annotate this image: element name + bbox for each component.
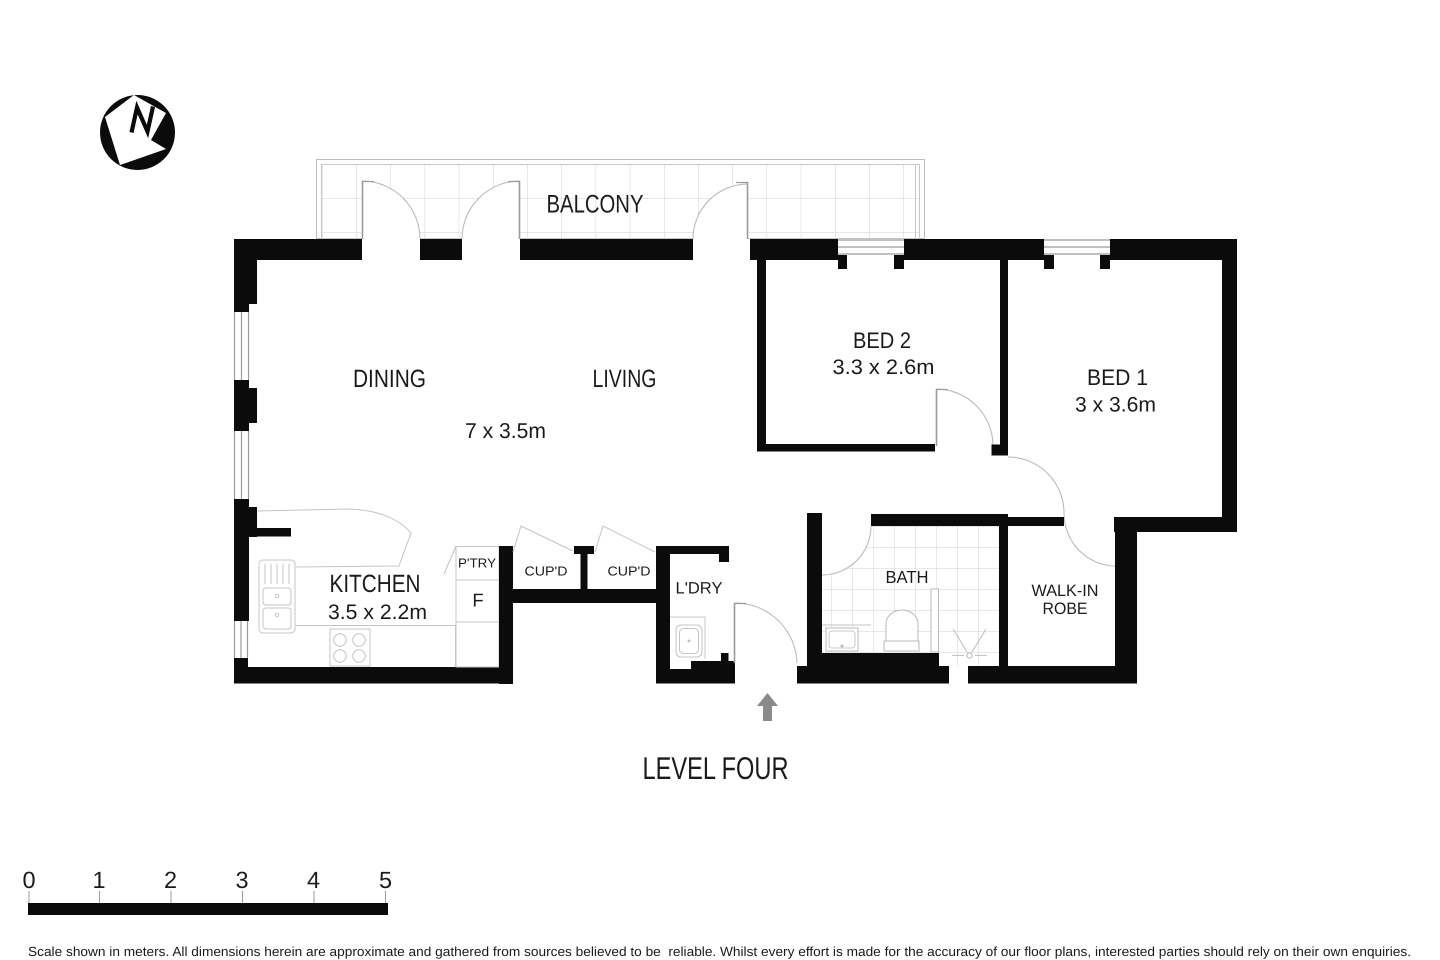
svg-text:BED 1: BED 1 xyxy=(1087,365,1148,390)
svg-text:WALK-IN: WALK-IN xyxy=(1032,582,1099,600)
svg-text:LIVING: LIVING xyxy=(593,365,657,393)
svg-text:2: 2 xyxy=(164,867,177,893)
svg-text:4: 4 xyxy=(307,867,320,893)
svg-text:ROBE: ROBE xyxy=(1043,600,1088,618)
svg-text:KITCHEN: KITCHEN xyxy=(330,570,421,598)
svg-text:3.3 x 2.6m: 3.3 x 2.6m xyxy=(833,356,935,379)
svg-text:F: F xyxy=(472,590,483,611)
svg-text:Scale shown in meters. All dim: Scale shown in meters. All dimensions he… xyxy=(28,944,1411,959)
svg-text:CUP'D: CUP'D xyxy=(525,564,568,579)
svg-text:CUP'D: CUP'D xyxy=(608,564,651,579)
svg-text:BED 2: BED 2 xyxy=(853,328,911,353)
svg-text:1: 1 xyxy=(92,867,105,893)
svg-text:BALCONY: BALCONY xyxy=(547,191,644,219)
svg-text:L'DRY: L'DRY xyxy=(676,580,723,598)
svg-text:BATH: BATH xyxy=(886,567,929,587)
svg-text:0: 0 xyxy=(22,867,35,893)
svg-text:7 x 3.5m: 7 x 3.5m xyxy=(465,419,546,443)
svg-text:3 x 3.6m: 3 x 3.6m xyxy=(1075,394,1156,417)
svg-text:LEVEL FOUR: LEVEL FOUR xyxy=(643,750,789,786)
svg-text:3.5 x 2.2m: 3.5 x 2.2m xyxy=(328,601,427,624)
svg-text:P'TRY: P'TRY xyxy=(458,556,496,571)
svg-text:DINING: DINING xyxy=(353,365,426,393)
svg-text:3: 3 xyxy=(235,867,248,893)
svg-text:5: 5 xyxy=(379,867,392,893)
